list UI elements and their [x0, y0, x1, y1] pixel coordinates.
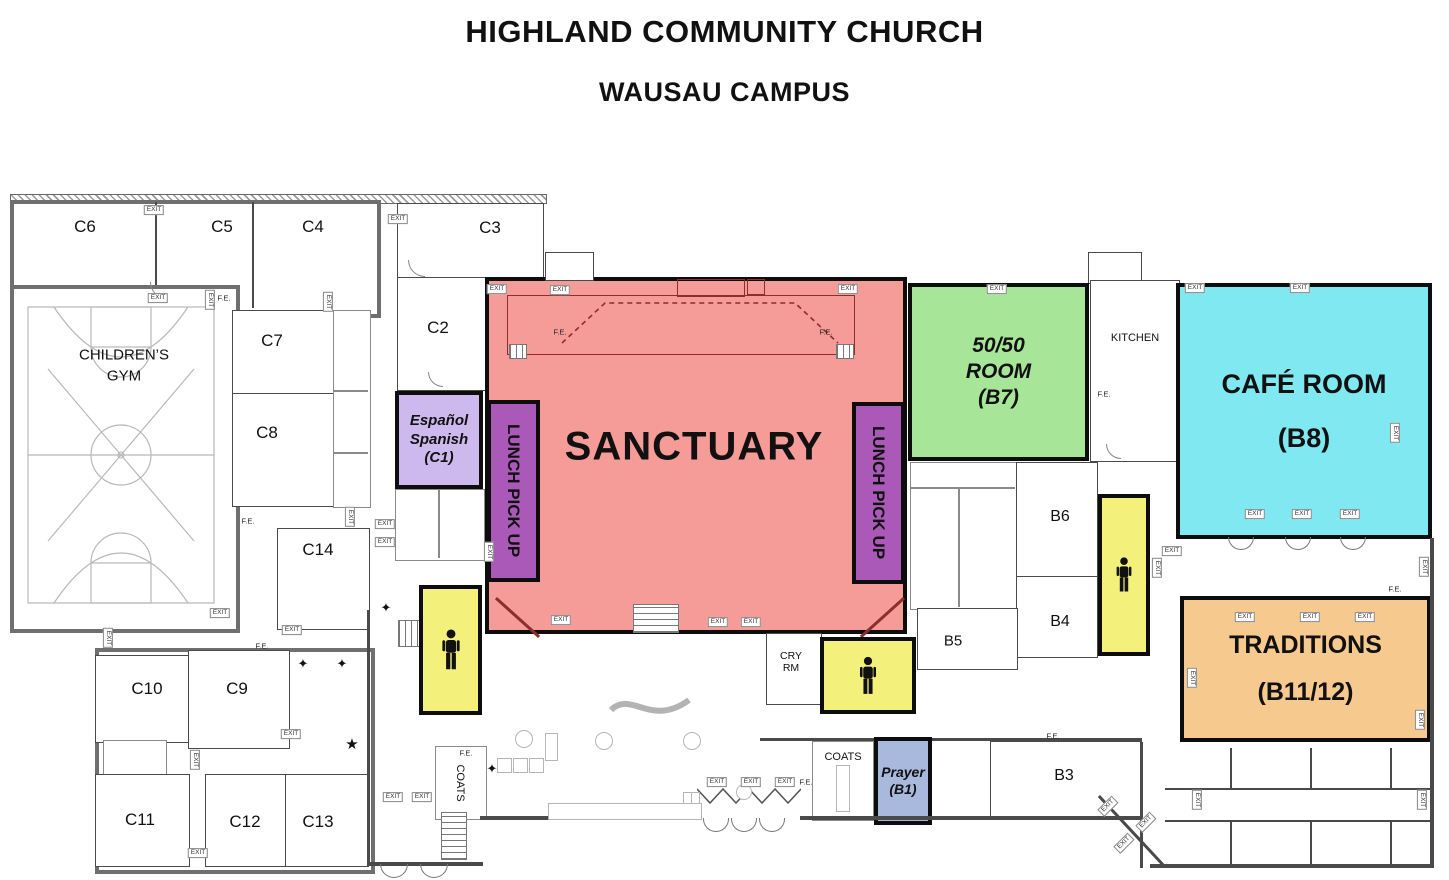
fire-extinguisher-label: F.E. — [1047, 732, 1060, 741]
male-restroom-icon — [855, 654, 881, 698]
door-arc — [703, 818, 729, 832]
kitchen-label: KITCHEN — [1111, 332, 1159, 344]
welcome-desk-swoosh — [605, 688, 695, 730]
room-c9 — [188, 650, 290, 749]
espanol-label-line2: Spanish — [410, 431, 468, 450]
fire-extinguisher-label: F.E. — [554, 328, 567, 337]
cry-room-label-line1: CRY — [780, 650, 802, 662]
exit-sign: EXIT — [412, 792, 432, 802]
door-arc — [731, 818, 757, 832]
exit-sign: EXIT — [1235, 612, 1255, 622]
fire-extinguisher-label: F.E. — [820, 328, 833, 337]
wall — [1165, 788, 1430, 790]
exit-sign: EXIT — [1340, 509, 1360, 519]
room-label-c5: C5 — [211, 217, 233, 237]
sparkle-icon: ✦ — [298, 656, 309, 672]
room-lunch-pickup-right: LUNCH PICK UP — [852, 402, 905, 584]
exit-sign: EXIT — [484, 542, 494, 562]
exit-sign: EXIT — [1290, 283, 1310, 293]
room-lunch-pickup-left: LUNCH PICK UP — [487, 400, 540, 582]
room-kitchen — [1090, 280, 1180, 462]
restroom-right — [1098, 494, 1150, 656]
exit-sign: EXIT — [383, 792, 403, 802]
wall — [367, 610, 370, 865]
room-childrens-gym — [10, 285, 240, 633]
door-arc — [759, 818, 785, 832]
room-label-c8: C8 — [256, 423, 278, 443]
exit-sign: EXIT — [1415, 710, 1425, 730]
exit-sign: EXIT — [281, 729, 301, 739]
room-prayer-b1: Prayer (B1) — [874, 737, 932, 825]
exit-sign: EXIT — [1185, 283, 1205, 293]
prayer-label-line1: Prayer — [881, 764, 925, 782]
wall — [438, 490, 440, 558]
wall — [1310, 822, 1312, 864]
exit-sign: EXIT — [775, 777, 795, 787]
fifty-fifty-label-line3: (B7) — [978, 385, 1019, 411]
chair — [497, 758, 512, 773]
wall — [1310, 748, 1312, 788]
wall — [1230, 748, 1232, 788]
room-label-c12: C12 — [229, 812, 260, 832]
traditions-label-line2: (B11/12) — [1258, 669, 1354, 717]
wall — [911, 487, 1015, 489]
door-arc — [1340, 537, 1366, 550]
room-label-c10: C10 — [131, 679, 162, 699]
coats-entry-label: COATS — [454, 764, 466, 801]
exit-sign: EXIT — [388, 214, 408, 224]
exit-sign: EXIT — [1245, 509, 1265, 519]
room-label-c7: C7 — [261, 331, 283, 351]
room-label-b6: B6 — [1050, 508, 1070, 526]
exit-sign: EXIT — [323, 292, 333, 312]
vestibule — [545, 252, 594, 281]
exit-sign: EXIT — [103, 628, 113, 648]
restroom-stalls — [333, 310, 371, 508]
prayer-label-line2: (B1) — [889, 781, 916, 799]
exit-sign: EXIT — [148, 293, 168, 303]
exit-sign: EXIT — [1187, 668, 1197, 688]
fire-extinguisher-label: F.E. — [256, 642, 269, 651]
chair — [513, 758, 528, 773]
door-arc — [420, 864, 448, 878]
stage-stairs — [509, 344, 527, 359]
exit-sign: EXIT — [838, 284, 858, 294]
wall — [1390, 822, 1392, 864]
wall — [252, 202, 254, 308]
room-label-b5: B5 — [944, 633, 962, 650]
exit-sign: EXIT — [210, 608, 230, 618]
traditions-label-line1: TRADITIONS — [1229, 622, 1382, 670]
male-restroom-icon — [1112, 554, 1136, 596]
exit-sign: EXIT — [551, 615, 571, 625]
restroom-pair — [395, 489, 485, 561]
room-label-c13: C13 — [302, 812, 333, 832]
fire-extinguisher-label: F.E. — [1098, 390, 1111, 399]
room-label-c11: C11 — [125, 810, 155, 830]
exit-sign: EXIT — [987, 284, 1007, 294]
coats-lobby-label: COATS — [824, 751, 861, 763]
cry-room-label-line2: RM — [783, 662, 799, 674]
basketball-court-icon — [14, 289, 228, 621]
exit-sign: EXIT — [1419, 557, 1429, 577]
coat-rack — [836, 765, 850, 812]
wall — [334, 390, 368, 392]
espanol-label-line3: (C1) — [424, 449, 453, 468]
exit-sign: EXIT — [550, 285, 570, 295]
room-label-c9: C9 — [226, 679, 248, 699]
gym-label-line1: CHILDREN’S — [79, 347, 169, 364]
cafe-label-line1: CAFÉ ROOM — [1222, 357, 1387, 411]
exit-sign: EXIT — [190, 750, 200, 770]
room-c8 — [232, 393, 335, 507]
star-icon: ★ — [345, 735, 358, 753]
page-title: HIGHLAND COMMUNITY CHURCH — [0, 14, 1449, 50]
stage-booth — [747, 279, 765, 295]
counter — [548, 803, 702, 820]
exit-sign: EXIT — [1192, 790, 1202, 810]
room-c7 — [232, 310, 335, 395]
exit-sign: EXIT — [375, 519, 395, 529]
table — [595, 732, 613, 750]
exit-sign: EXIT — [205, 290, 215, 310]
room-fifty-fifty-b7: 50/50 ROOM (B7) — [908, 283, 1089, 461]
fifty-fifty-label-line1: 50/50 — [972, 333, 1025, 359]
room-label-c6: C6 — [74, 217, 96, 237]
room-c10 — [95, 655, 190, 743]
exit-sign: EXIT — [1355, 612, 1375, 622]
wall — [1140, 742, 1143, 868]
exit-sign: EXIT — [282, 625, 302, 635]
exit-sign: EXIT — [1390, 423, 1400, 443]
stage-booth — [677, 279, 745, 297]
lunch-pickup-label: LUNCH PICK UP — [503, 424, 524, 557]
wall — [334, 452, 368, 454]
floor-plan: HIGHLAND COMMUNITY CHURCH WAUSAU CAMPUS … — [0, 0, 1449, 880]
cafe-label-line2: (B8) — [1278, 411, 1331, 465]
room-label-b4: B4 — [1050, 613, 1070, 631]
exit-sign: EXIT — [1292, 509, 1312, 519]
fire-extinguisher-label: F.E. — [800, 778, 813, 787]
door-arc — [380, 864, 408, 878]
room-label-b3: B3 — [1054, 767, 1074, 785]
restroom-small — [103, 740, 167, 778]
wall — [1390, 748, 1392, 788]
door-arc — [1228, 537, 1254, 550]
exit-sign: EXIT — [1113, 832, 1134, 853]
exit-sign: EXIT — [1300, 612, 1320, 622]
exit-sign: EXIT — [375, 537, 395, 547]
stage-edge-dashed — [560, 297, 840, 345]
room-cafe-b8: CAFÉ ROOM (B8) — [1176, 283, 1432, 539]
sparkle-icon: ✦ — [381, 600, 392, 616]
restroom-center — [820, 637, 916, 714]
restroom-left — [419, 585, 482, 715]
room-label-c4: C4 — [302, 217, 324, 237]
fire-extinguisher-label: F.E. — [242, 517, 255, 526]
sparkle-icon: ✦ — [487, 761, 498, 777]
exit-sign: EXIT — [1162, 546, 1182, 556]
exit-sign: EXIT — [144, 205, 164, 215]
door-arc — [1285, 537, 1311, 550]
exit-sign: EXIT — [1417, 790, 1427, 810]
exit-sign: EXIT — [1152, 558, 1162, 578]
room-espanol-c1: Español Spanish (C1) — [395, 391, 483, 489]
shelf — [545, 733, 558, 761]
exit-sign: EXIT — [741, 617, 761, 627]
fire-extinguisher-label: F.E. — [1389, 585, 1402, 594]
wall — [1430, 538, 1434, 868]
room-label-c2: C2 — [427, 318, 449, 338]
wall — [800, 816, 1140, 820]
fifty-fifty-label-line2: ROOM — [966, 359, 1031, 385]
room-label-c3: C3 — [479, 218, 501, 238]
male-restroom-icon — [437, 626, 465, 674]
wall — [958, 488, 960, 607]
table — [515, 730, 533, 748]
sparkle-icon: ✦ — [337, 656, 348, 672]
stairs — [633, 604, 679, 633]
table — [683, 732, 701, 750]
exit-sign: EXIT — [345, 507, 355, 527]
exit-sign: EXIT — [708, 617, 728, 627]
fire-extinguisher-label: F.E. — [460, 749, 473, 758]
stairs — [441, 812, 467, 860]
room-cluster — [910, 462, 1018, 610]
stage-stairs — [836, 344, 854, 359]
chair — [529, 758, 544, 773]
exit-sign: EXIT — [188, 848, 208, 858]
gym-label-line2: GYM — [107, 368, 141, 385]
exit-sign: EXIT — [487, 284, 507, 294]
page-subtitle: WAUSAU CAMPUS — [0, 77, 1449, 108]
sanctuary-label: SANCTUARY — [565, 425, 824, 470]
wall — [1150, 864, 1434, 868]
exit-sign: EXIT — [741, 777, 761, 787]
exit-sign: EXIT — [707, 777, 727, 787]
room-b5 — [917, 608, 1018, 670]
room-label-c14: C14 — [302, 540, 333, 560]
wall — [1230, 822, 1232, 864]
fire-extinguisher-label: F.E. — [218, 294, 231, 303]
espanol-label-line1: Español — [410, 412, 468, 431]
lunch-pickup-label: LUNCH PICK UP — [868, 426, 889, 559]
